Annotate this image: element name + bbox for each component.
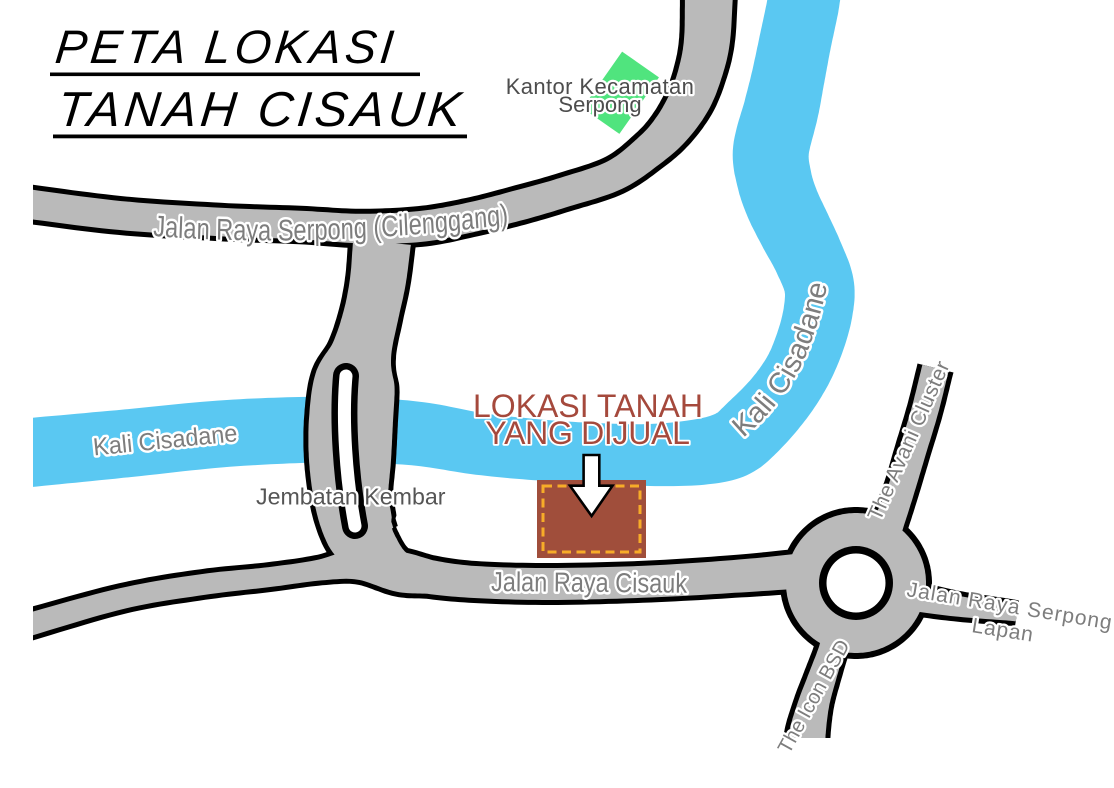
svg-text:YANG DIJUAL: YANG DIJUAL [485, 415, 689, 451]
svg-text:Serpong: Serpong [558, 92, 641, 117]
svg-text:PETA LOKASI: PETA LOKASI [53, 20, 400, 73]
svg-text:Jembatan Kembar: Jembatan Kembar [256, 484, 446, 510]
svg-text:Jalan Raya Cisauk: Jalan Raya Cisauk [491, 567, 687, 599]
svg-text:TANAH CISAUK: TANAH CISAUK [55, 83, 468, 137]
